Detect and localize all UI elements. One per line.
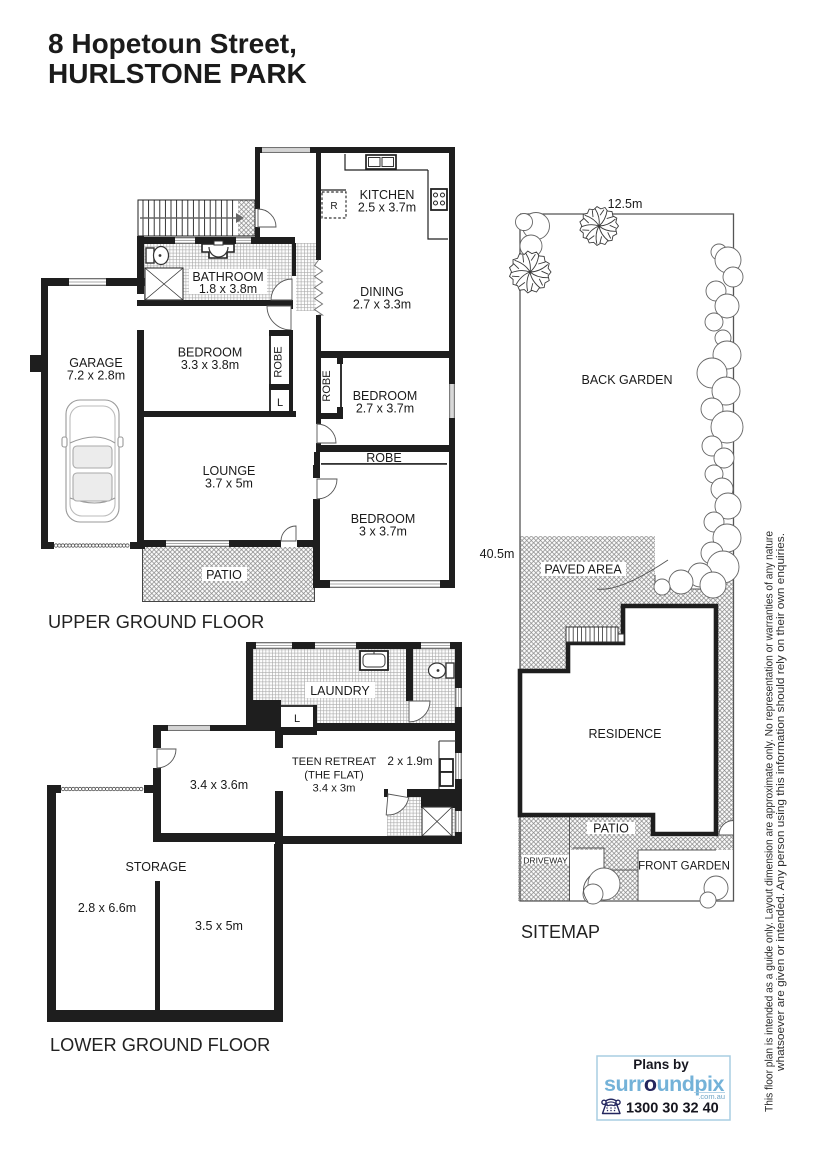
svg-text:2.8 x 6.6m: 2.8 x 6.6m — [78, 901, 136, 915]
svg-text:2 x 1.9m: 2 x 1.9m — [387, 754, 432, 768]
svg-text:12.5m: 12.5m — [608, 197, 643, 211]
svg-text:3 x 3.7m: 3 x 3.7m — [359, 525, 407, 539]
svg-text:R: R — [330, 201, 337, 212]
svg-text:2.7 x 3.7m: 2.7 x 3.7m — [356, 402, 414, 416]
svg-text:This floor plan is intended as: This floor plan is intended as a guide o… — [764, 531, 776, 1112]
svg-text:1300 30 32 40: 1300 30 32 40 — [626, 1101, 719, 1117]
svg-text:L: L — [294, 713, 300, 725]
svg-text:1.8 x 3.8m: 1.8 x 3.8m — [199, 282, 257, 296]
svg-text:ROBE: ROBE — [321, 370, 333, 401]
svg-text:SITEMAP: SITEMAP — [521, 922, 600, 942]
svg-text:PAVED AREA: PAVED AREA — [544, 563, 622, 577]
svg-text:3.4 x 3.6m: 3.4 x 3.6m — [190, 778, 248, 792]
svg-text:2.7 x 3.3m: 2.7 x 3.3m — [353, 298, 411, 312]
svg-text:40.5m: 40.5m — [480, 547, 515, 561]
svg-text:ROBE: ROBE — [366, 451, 401, 465]
svg-text:STORAGE: STORAGE — [126, 860, 187, 874]
svg-text:3.3 x 3.8m: 3.3 x 3.8m — [181, 358, 239, 372]
svg-text:whatsoever are given or intend: whatsoever are given or intended. Any pe… — [775, 533, 787, 1072]
svg-text:HURLSTONE PARK: HURLSTONE PARK — [48, 58, 307, 89]
svg-text:8 Hopetoun Street,: 8 Hopetoun Street, — [48, 28, 297, 59]
svg-text:2.5 x 3.7m: 2.5 x 3.7m — [358, 201, 416, 215]
svg-text:3.7 x 5m: 3.7 x 5m — [205, 477, 253, 491]
svg-text:3.5 x 5m: 3.5 x 5m — [195, 919, 243, 933]
svg-text:RESIDENCE: RESIDENCE — [589, 727, 662, 741]
svg-text:Plans by: Plans by — [633, 1057, 689, 1072]
svg-text:L: L — [277, 397, 283, 409]
svg-text:ROBE: ROBE — [273, 346, 285, 377]
svg-text:BACK GARDEN: BACK GARDEN — [582, 373, 673, 387]
svg-text:FRONT GARDEN: FRONT GARDEN — [638, 861, 730, 873]
svg-text:3.4 x 3m: 3.4 x 3m — [313, 783, 356, 795]
svg-text:TEEN RETREAT: TEEN RETREAT — [292, 756, 376, 768]
svg-text:UPPER GROUND FLOOR: UPPER GROUND FLOOR — [48, 612, 264, 632]
svg-text:DRIVEWAY: DRIVEWAY — [523, 856, 568, 866]
svg-text:PATIO: PATIO — [593, 822, 629, 836]
svg-text:LAUNDRY: LAUNDRY — [310, 684, 370, 698]
svg-text:LOWER GROUND FLOOR: LOWER GROUND FLOOR — [50, 1035, 270, 1055]
svg-text:(THE FLAT): (THE FLAT) — [304, 770, 364, 782]
svg-text:PATIO: PATIO — [206, 568, 242, 582]
svg-text:7.2 x 2.8m: 7.2 x 2.8m — [67, 369, 125, 383]
